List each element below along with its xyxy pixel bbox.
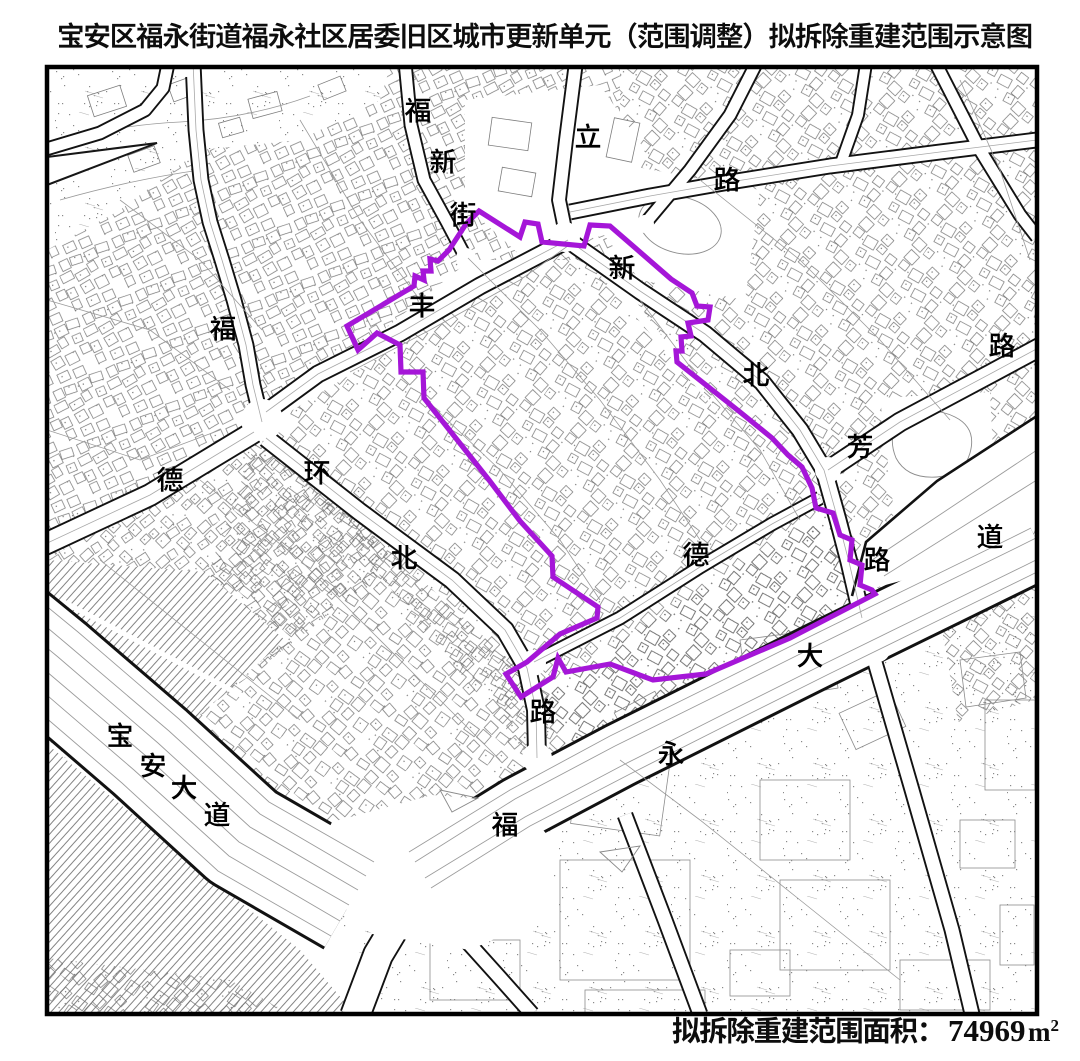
svg-text:74969: 74969 bbox=[948, 1013, 1026, 1048]
